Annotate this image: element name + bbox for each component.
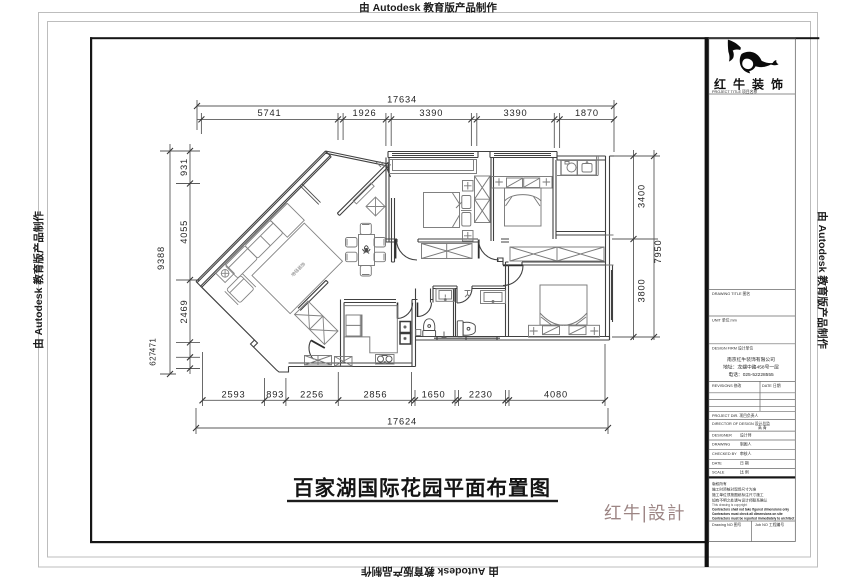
svg-text:施工单位须按图纸标注尺寸施工: 施工单位须按图纸标注尺寸施工 (712, 492, 764, 497)
svg-text:7950: 7950 (653, 240, 663, 264)
svg-text:由 Autodesk 教育版产品制作: 由 Autodesk 教育版产品制作 (359, 1, 497, 14)
svg-text:2230: 2230 (469, 389, 493, 399)
svg-text:DESIGNER: DESIGNER (712, 434, 732, 438)
svg-text:南京红牛装饰有限公司: 南京红牛装饰有限公司 (727, 356, 775, 363)
svg-text:版权所有: 版权所有 (712, 481, 727, 486)
svg-text:627: 627 (149, 351, 158, 366)
svg-text:地址：龙蟠中路458号一层: 地址：龙蟠中路458号一层 (723, 364, 779, 371)
svg-text:DATE 日期: DATE 日期 (762, 383, 781, 388)
svg-text:893: 893 (266, 389, 284, 399)
svg-text:DESIGN FIRM 设计单位: DESIGN FIRM 设计单位 (712, 346, 753, 351)
svg-text:日 期: 日 期 (740, 461, 749, 466)
svg-text:3400: 3400 (637, 184, 647, 208)
svg-text:百家湖国际花园平面布置图: 百家湖国际花园平面布置图 (293, 476, 551, 500)
svg-text:1870: 1870 (575, 108, 599, 118)
svg-text:PROJECT TITLE 项目名称: PROJECT TITLE 项目名称 (712, 89, 757, 94)
svg-text:Contractors must be reported i: Contractors must be reported immediately… (712, 517, 795, 521)
svg-text:电话：025-52228555: 电话：025-52228555 (728, 371, 774, 378)
svg-text:设计师: 设计师 (740, 433, 752, 438)
svg-text:DRAWING TITLE 图名: DRAWING TITLE 图名 (712, 291, 750, 296)
svg-text:3390: 3390 (504, 108, 528, 118)
svg-text:Drawing NO 图号: Drawing NO 图号 (712, 522, 742, 527)
svg-text:2856: 2856 (363, 389, 387, 399)
svg-text:9388: 9388 (156, 246, 166, 270)
svg-text:931: 931 (179, 158, 189, 176)
svg-text:3390: 3390 (419, 108, 443, 118)
svg-text:DRAWING: DRAWING (712, 443, 730, 447)
svg-text:17634: 17634 (387, 95, 417, 105)
svg-text:5741: 5741 (258, 108, 282, 118)
svg-text:高 青: 高 青 (758, 425, 767, 430)
svg-text:如有不明之处请与设计师联系确认: 如有不明之处请与设计师联系确认 (712, 498, 768, 503)
svg-text:DATE: DATE (712, 462, 722, 466)
svg-text:Job NO 工程编号: Job NO 工程编号 (755, 522, 784, 527)
svg-text:1650: 1650 (422, 389, 446, 399)
svg-text:Contractors shall not take fig: Contractors shall not take figured dimen… (712, 508, 789, 512)
svg-text:1926: 1926 (353, 108, 377, 118)
svg-text:2593: 2593 (222, 389, 246, 399)
svg-text:This drawing is copyright: This drawing is copyright (712, 503, 747, 507)
svg-text:审核人: 审核人 (740, 451, 752, 456)
svg-text:2256: 2256 (300, 389, 324, 399)
svg-text:PROJECT DIR. 项目负责人: PROJECT DIR. 项目负责人 (712, 413, 759, 418)
svg-text:17624: 17624 (387, 417, 417, 427)
svg-text:制图人: 制图人 (740, 442, 752, 447)
svg-text:CHECKED BY: CHECKED BY (712, 452, 737, 456)
svg-text:施工时须核对现场尺寸为准: 施工时须核对现场尺寸为准 (712, 487, 757, 492)
svg-text:由 Autodesk 教育版产品制作: 由 Autodesk 教育版产品制作 (361, 565, 499, 578)
svg-text:由 Autodesk 教育版产品制作: 由 Autodesk 教育版产品制作 (32, 211, 45, 349)
svg-text:红牛|設計: 红牛|設計 (604, 503, 686, 523)
svg-text:Contractors must check all dim: Contractors must check all dimensions on… (712, 512, 783, 516)
svg-text:UNIT 单位:mm: UNIT 单位:mm (712, 318, 737, 323)
svg-text:3800: 3800 (637, 279, 647, 303)
svg-text:SCALE: SCALE (712, 471, 725, 475)
svg-text:由 Autodesk 教育版产品制作: 由 Autodesk 教育版产品制作 (816, 211, 829, 349)
svg-text:4080: 4080 (544, 389, 568, 399)
svg-text:471: 471 (149, 338, 158, 353)
svg-text:4055: 4055 (179, 220, 189, 244)
svg-text:2469: 2469 (179, 300, 189, 324)
svg-text:REVISIONS 修改: REVISIONS 修改 (712, 383, 742, 388)
svg-text:比 例: 比 例 (740, 470, 749, 475)
